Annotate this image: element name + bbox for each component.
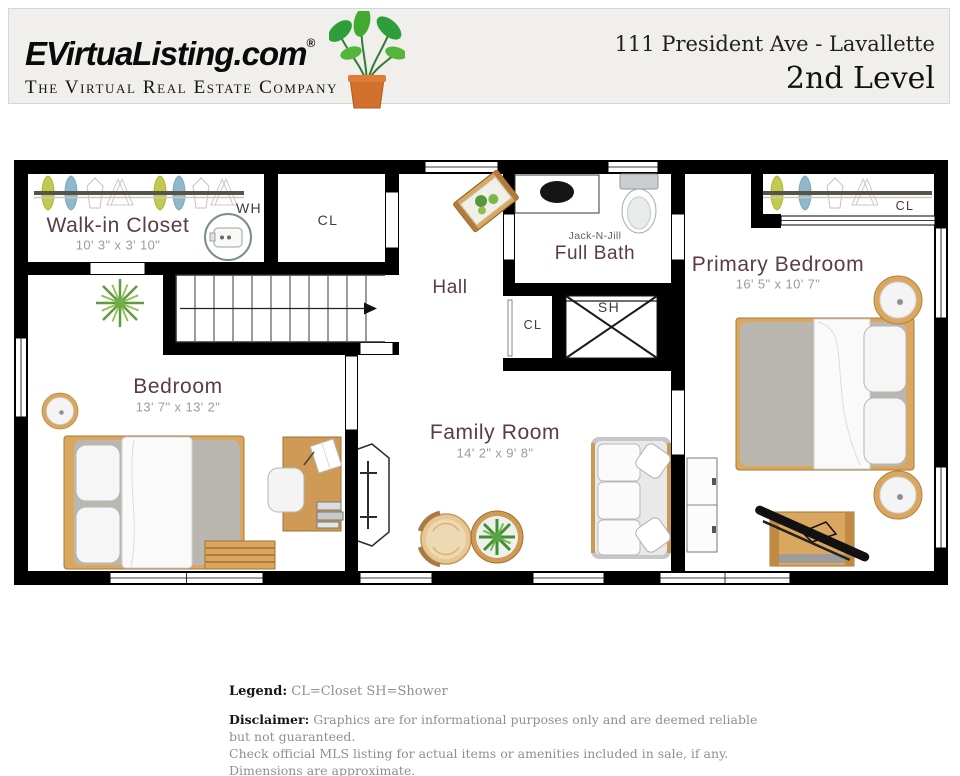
primary-bed	[736, 318, 914, 470]
door-walkin	[90, 263, 145, 275]
wh-label: WH	[236, 200, 262, 216]
pillow	[76, 445, 120, 501]
wall-shower-bottom	[503, 358, 685, 371]
cl-label-primary-closet: CL	[896, 199, 915, 213]
wall-shower-right	[657, 283, 685, 371]
stairs	[176, 275, 385, 342]
primary-dresser	[687, 458, 717, 552]
primary-nightstand	[874, 276, 922, 324]
wall-primarycloset-bottom	[751, 214, 781, 228]
room-label-family-room: Family Room	[430, 421, 560, 445]
desk-chair	[268, 468, 304, 512]
sofa	[591, 437, 672, 559]
wall-closets-bottom	[28, 262, 399, 275]
room-label-walk-in-closet: Walk-in Closet	[47, 214, 190, 238]
sink-icon	[540, 181, 574, 203]
cl-label-hall-closet: CL	[318, 212, 339, 228]
brand-logo: EVirtuaListing.com® The Virtual Real Est…	[25, 21, 338, 99]
weight-bench-outline	[358, 444, 389, 546]
plant-logo-icon	[329, 11, 405, 111]
disclaimer: Disclaimer: Graphics are for information…	[229, 711, 769, 776]
brand-name: EVirtuaListing.com®	[25, 21, 338, 76]
disclaimer-line1: Graphics are for informational purposes …	[229, 712, 757, 744]
door-bath-primary	[672, 214, 685, 260]
room-dims-walk-in-closet: 10' 3" x 3' 10"	[76, 238, 161, 253]
door-primary-entry	[672, 390, 685, 455]
listing-address: 111 President Ave - Lavallette	[615, 31, 935, 57]
primary-nightstand	[874, 471, 922, 519]
vanity	[515, 175, 599, 213]
legend-text: CL=Closet SH=Shower	[291, 684, 447, 699]
door-bath-hall	[504, 214, 515, 260]
brand-text: EVirtuaListing.com	[25, 35, 306, 72]
room-label-primary-bedroom: Primary Bedroom	[692, 253, 864, 277]
door-hall-closet	[386, 192, 399, 248]
page: EVirtuaListing.com® The Virtual Real Est…	[0, 0, 960, 776]
sh-label: SH	[598, 299, 620, 315]
door-bedroom	[346, 356, 358, 430]
registered-mark-icon: ®	[306, 36, 315, 50]
floor-level: 2nd Level	[615, 59, 935, 99]
water-heater-icon	[205, 214, 251, 260]
room-label-bedroom: Bedroom	[133, 375, 222, 399]
room-label-full-bath: Full Bath	[555, 243, 635, 265]
room-dims-bedroom: 13' 7" x 13' 2"	[136, 400, 221, 415]
floorplan: Walk-in Closet 10' 3" x 3' 10" WH CL Hal…	[14, 160, 948, 585]
room-label-hall: Hall	[432, 277, 467, 299]
wall-stairs-left	[163, 262, 176, 355]
bath-sublabel: Jack-N-Jill	[569, 230, 622, 242]
wall-bathcloset-right	[552, 296, 566, 358]
cl-label-bath-closet: CL	[524, 318, 543, 332]
pillow	[864, 326, 906, 392]
legend-label: Legend:	[229, 684, 287, 699]
door-stairs	[360, 343, 393, 355]
room-dims-primary-bedroom: 16' 5" x 10' 7"	[736, 277, 821, 292]
door-bath-closet	[508, 300, 512, 356]
room-dims-family-room: 14' 2" x 9' 8"	[457, 446, 534, 461]
bedroom-bench	[205, 541, 275, 569]
wall-walkin-right	[264, 160, 278, 275]
toilet-icon	[620, 174, 658, 233]
pillow	[864, 398, 906, 464]
legend: Legend: CL=Closet SH=Shower	[229, 684, 448, 699]
listing-info: 111 President Ave - Lavallette 2nd Level	[615, 31, 935, 99]
pillow	[76, 507, 120, 563]
disclaimer-line2: Check official MLS listing for actual it…	[229, 746, 728, 776]
disclaimer-label: Disclaimer:	[229, 712, 309, 727]
bedroom-nightstand	[42, 393, 78, 429]
round-chair	[420, 513, 471, 565]
brand-tagline: The Virtual Real Estate Company	[25, 77, 338, 99]
potted-plant-icon	[471, 511, 523, 563]
header-bar: EVirtuaListing.com® The Virtual Real Est…	[8, 8, 950, 104]
